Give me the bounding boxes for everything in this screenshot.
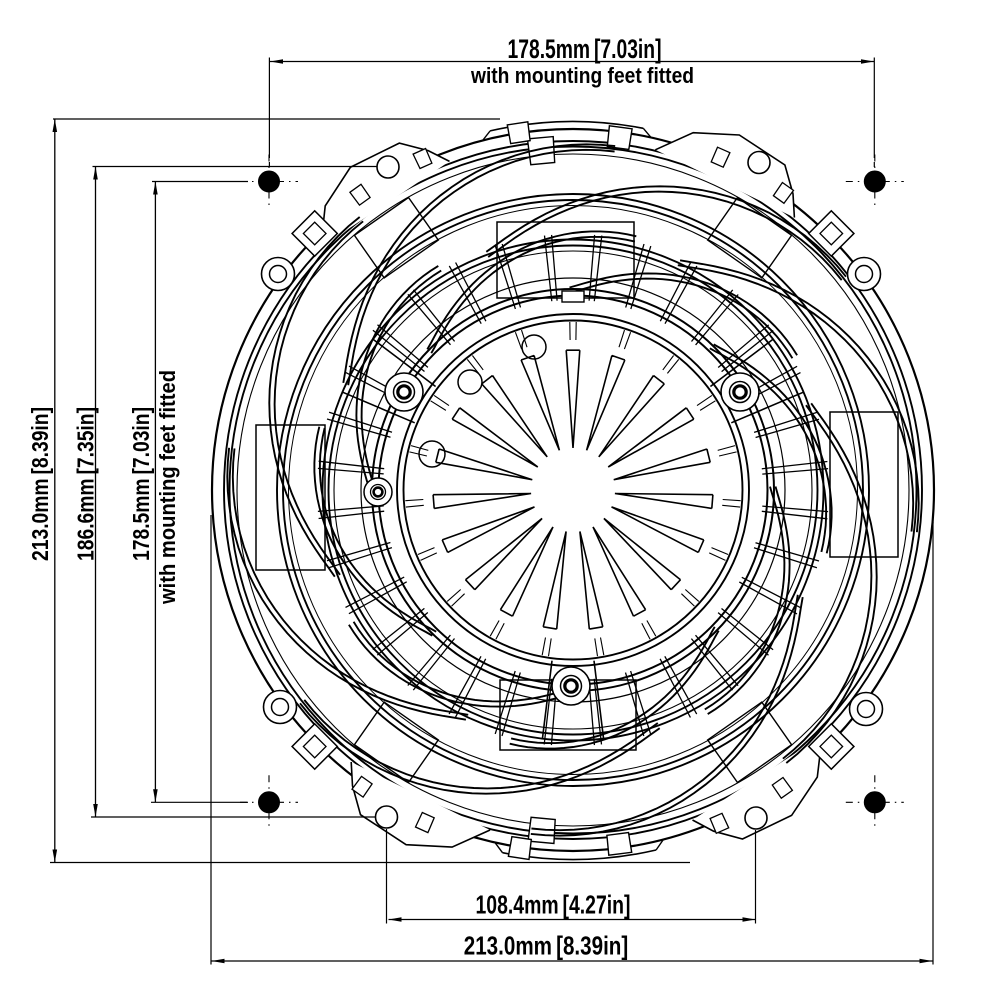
svg-text:with mounting feet fitted: with mounting feet fitted <box>470 63 694 88</box>
svg-text:213.0mm [8.39in]: 213.0mm [8.39in] <box>464 931 629 961</box>
svg-text:108.4mm [4.27in]: 108.4mm [4.27in] <box>476 890 631 920</box>
svg-text:178.5mm [7.03in]: 178.5mm [7.03in] <box>508 34 662 64</box>
svg-text:178.5mm [7.03in]: 178.5mm [7.03in] <box>128 407 154 561</box>
svg-text:with mounting feet fitted: with mounting feet fitted <box>155 370 180 605</box>
svg-text:213.0mm [8.39in]: 213.0mm [8.39in] <box>27 407 53 561</box>
svg-text:186.6mm [7.35in]: 186.6mm [7.35in] <box>72 407 98 561</box>
